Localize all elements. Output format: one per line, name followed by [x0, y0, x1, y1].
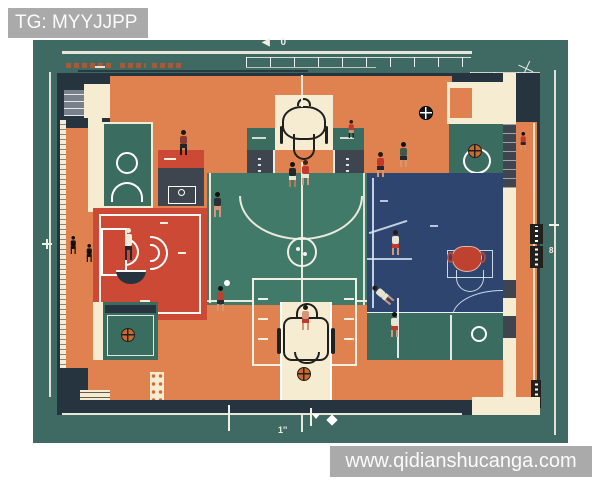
hoop-top-hook-left: [280, 126, 283, 144]
panel-mark: [252, 137, 266, 139]
right-dimension-tick: [549, 224, 559, 226]
lane-tick: [258, 318, 268, 320]
basketball-icon-dark: [419, 106, 433, 120]
cream-column-right: [503, 73, 516, 403]
lane-tick: [344, 338, 354, 340]
key-plan-circle: [178, 189, 185, 196]
arrow-down-icon: [312, 414, 320, 419]
player-figure: [124, 228, 133, 260]
center-circle-dot: [296, 247, 300, 251]
slate-block: [503, 316, 516, 338]
cream-block-br: [472, 397, 540, 415]
blue-dash: [380, 200, 388, 202]
hoop-top-arc: [297, 98, 311, 106]
gray-panel: [64, 90, 84, 116]
player-figure: [179, 130, 188, 155]
player-figure: [390, 312, 399, 337]
teal-zone-divider: [450, 315, 452, 360]
lane-tick: [258, 298, 268, 300]
center-circle-dot: [303, 252, 307, 256]
red-vase-handle: [479, 252, 486, 263]
annotation-scribble: [120, 63, 146, 68]
basketball-icon: [121, 328, 135, 342]
top-dimension-line: [62, 51, 472, 54]
annotation-underline: [78, 70, 308, 72]
bottom-dimension-marker: 1'': [278, 425, 287, 435]
left-dimension-tick: [46, 239, 48, 249]
film-strip-icon: [530, 246, 543, 268]
center-line-top: [301, 75, 303, 107]
lane-tick: [344, 318, 354, 320]
player-figure: [391, 230, 400, 255]
watermark-channel-text: TG: MYYJJPP: [15, 12, 137, 33]
basketball-icon: [297, 367, 311, 381]
player-figure: [399, 142, 408, 167]
basketball-icon: [468, 144, 482, 158]
hoop-top-hook-right: [325, 126, 328, 144]
teal-side-panel-left: [247, 128, 275, 150]
held-ball: [224, 280, 230, 286]
right-dimension-marker: 8: [549, 246, 553, 255]
left-ruler-ticks: [60, 120, 66, 400]
orange-square: [450, 88, 472, 118]
player-figure: [301, 160, 310, 185]
lane-tick: [344, 298, 354, 300]
player-silhouette: [70, 236, 76, 254]
blue-line-h: [367, 258, 412, 260]
red-vase-handle: [447, 252, 454, 263]
right-dimension-line: [554, 70, 556, 435]
teal-square-header: [105, 305, 156, 313]
hoop-bottom-bracket-left: [277, 328, 281, 354]
annotation-tick: [95, 66, 105, 68]
slate-block: [503, 124, 516, 188]
bottom-dimension-line: [62, 413, 462, 415]
player-figure: [520, 132, 526, 150]
center-circle: [287, 237, 317, 267]
person-badge-icon: [116, 152, 138, 174]
top-ruler-ticks: [246, 57, 471, 67]
player-figure: [376, 152, 385, 177]
bottom-dimension-tick: [228, 405, 230, 431]
red-court-dash: [160, 222, 168, 224]
player-figure: [348, 120, 354, 138]
player-figure: [301, 305, 310, 330]
hoop-bottom-bracket-right: [331, 328, 335, 354]
player-figure: [213, 192, 222, 217]
watermark-website: www.qidianshucanga.com: [330, 446, 592, 477]
top-dimension-marker: ◀ 0: [262, 37, 290, 48]
red-court-dash: [178, 252, 186, 254]
watermark-channel: TG: MYYJJPP: [8, 8, 148, 38]
court-bottom-line: [207, 300, 254, 302]
poster-page: ◀ 0: [0, 0, 600, 480]
hoop-top-rim: [293, 134, 315, 160]
film-strip-icon: [530, 224, 543, 244]
player-figure: [288, 162, 297, 187]
left-dimension-line: [49, 72, 51, 397]
red-vase-figure: [452, 246, 482, 272]
annotation-scribble: [152, 63, 182, 68]
player-silhouette: [86, 244, 92, 262]
slate-block: [503, 280, 516, 298]
top-ruler-line2: [246, 67, 376, 68]
watermark-website-text: www.qidianshucanga.com: [345, 450, 576, 472]
annotation-scribble: [66, 63, 112, 68]
lane-tick: [258, 338, 268, 340]
cream-strip: [88, 118, 102, 212]
cream-strip-bl: [93, 302, 103, 360]
teal-zone-circle: [471, 326, 487, 342]
red-label-mark: [164, 158, 176, 160]
three-point-arc-wrap: [207, 196, 367, 242]
cream-panel: [84, 84, 110, 118]
player-figure: [216, 286, 225, 311]
blue-dash: [430, 225, 438, 227]
dot-strip: [150, 372, 164, 403]
